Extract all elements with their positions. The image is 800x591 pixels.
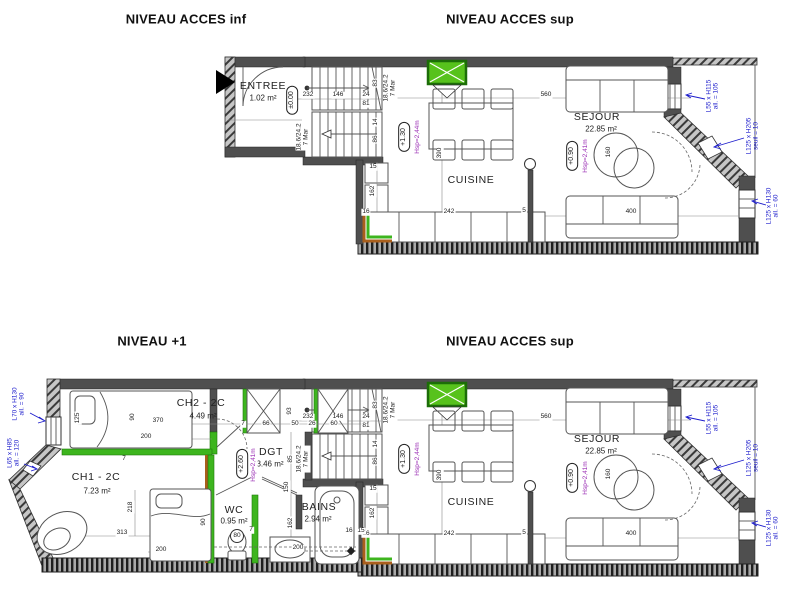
dim-label: 390: [437, 469, 444, 482]
dim-label: 162: [370, 185, 377, 198]
level-marker-dgt: +2.60: [236, 449, 248, 479]
dim-label: 5: [521, 530, 527, 537]
dim-label: 390: [437, 147, 444, 160]
dim-label: 80: [232, 533, 241, 540]
dim-label: 200: [155, 547, 168, 554]
dim-label: 162: [288, 517, 295, 530]
plan-title-upper-right: NIVEAU ACCES sup: [446, 12, 574, 27]
window-tag-w65x85: L65 x H85all. = 120: [7, 438, 22, 468]
dim-label: 15: [368, 486, 377, 493]
plan-title-lower-left: NIVEAU +1: [117, 334, 186, 349]
room-label-wc: WC: [225, 504, 244, 516]
plan-title-lower-right: NIVEAU ACCES sup: [446, 334, 574, 349]
dim-label: 90: [130, 412, 137, 421]
dim-label: 15: [368, 164, 377, 171]
window-tag-w55x115: L55 x H115all. = 105: [706, 80, 721, 113]
level-marker-cuisine: +1.30: [398, 122, 410, 152]
dim-label: 7: [240, 421, 246, 428]
room-label-bains: BAINS: [302, 501, 337, 513]
room-label-dgt: DGT: [259, 446, 283, 458]
room-label-sejour: SEJOUR: [574, 111, 620, 123]
room-label-ch2: CH2 - 2C: [177, 397, 226, 409]
room-area-wc: 0.95 m²: [220, 517, 247, 526]
ceiling-height-dgt: Hsp=2,41m: [251, 448, 258, 481]
dim-label: 90: [201, 517, 208, 526]
window-tag-w125x205: L125 x H205seuil = 10: [746, 440, 761, 477]
window-tag-w125x130: L125 x H130all. = 60: [766, 188, 781, 225]
stair-note: 18.6/24.27 Mar: [383, 74, 398, 101]
dim-label: 400: [625, 209, 638, 216]
stair-note: 18.6/24.27 Mar: [383, 396, 398, 423]
ceiling-height-cuisine: Hsp=2,44m: [415, 120, 422, 153]
room-label-cuisine: CUISINE: [448, 174, 495, 186]
dim-label: 86: [373, 134, 380, 143]
window-tag-w55x115: L55 x H115all. = 105: [706, 402, 721, 435]
plan-title-upper-left: NIVEAU ACCES inf: [126, 12, 246, 27]
dim-label: 16: [361, 209, 370, 216]
room-area-bains: 2.94 m²: [304, 515, 331, 524]
dim-label: 7: [121, 456, 127, 463]
dim-label: 24: [361, 414, 370, 421]
level-marker-cuisine: +1.30: [398, 444, 410, 474]
dim-label: 50: [290, 421, 299, 428]
room-area-sejour: 22.85 m²: [585, 447, 617, 456]
dim-label: 400: [625, 531, 638, 538]
window-tag-w125x205: L125 x H205seuil = 10: [746, 118, 761, 155]
dim-label: 242: [443, 209, 456, 216]
dim-label: 60: [329, 421, 338, 428]
level-marker-sejour: +0.90: [566, 141, 578, 171]
dim-label: 14: [373, 439, 380, 448]
dim-label: 218: [128, 501, 135, 514]
window-tag-w70x130: L70 x H130all. = 90: [12, 387, 27, 420]
room-label-entree: ENTREE: [240, 80, 286, 92]
ceiling-height-sejour: Hsp=2,41m: [583, 139, 590, 172]
ceiling-height-cuisine: Hsp=2,44m: [415, 442, 422, 475]
dim-label: 232: [302, 92, 315, 99]
dim-label: 150: [284, 481, 291, 494]
dim-label: 83: [373, 400, 380, 409]
window-tag-w125x130: L125 x H130all. = 60: [766, 510, 781, 547]
dim-label: 200: [292, 545, 305, 552]
dim-label: 16: [344, 528, 353, 535]
room-label-ch1: CH1 - 2C: [72, 471, 121, 483]
ceiling-height-sejour: Hsp=2,41m: [583, 461, 590, 494]
room-area-ch2: 4.49 m²: [189, 412, 216, 421]
dim-label: 125: [75, 412, 82, 425]
floor-plan-sheet: NIVEAU ACCES inf NIVEAU ACCES sup NIVEAU…: [0, 0, 800, 591]
annotation-layer: NIVEAU ACCES inf NIVEAU ACCES sup NIVEAU…: [0, 0, 800, 591]
dim-label: 83: [373, 78, 380, 87]
dim-label: 66: [261, 421, 270, 428]
dim-label: 81: [361, 101, 370, 108]
dim-label: 93: [287, 406, 294, 415]
dim-label: 160: [606, 468, 613, 481]
dim-label: 15: [356, 528, 365, 535]
dim-label: 7: [248, 527, 254, 534]
dim-label: 146: [332, 92, 345, 99]
dim-label: 14: [373, 117, 380, 126]
dim-label: 24: [361, 92, 370, 99]
dim-label: 86: [373, 456, 380, 465]
dim-label: 5: [521, 208, 527, 215]
room-label-sejour: SEJOUR: [574, 433, 620, 445]
level-marker-entree: ±0.00: [286, 85, 298, 114]
dim-label: 26: [307, 421, 316, 428]
dim-label: 313: [116, 530, 129, 537]
room-area-entree: 1.02 m²: [249, 94, 276, 103]
stair-note: 18.6/24.27 Mar: [296, 123, 311, 150]
level-marker-sejour: +0.90: [566, 463, 578, 493]
dim-label: 242: [443, 531, 456, 538]
room-label-cuisine: CUISINE: [448, 496, 495, 508]
dim-label: 560: [540, 414, 553, 421]
dim-label: 81: [361, 423, 370, 430]
dim-label: 160: [606, 146, 613, 159]
room-area-dgt: 3.46 m²: [256, 460, 283, 469]
room-area-sejour: 22.85 m²: [585, 125, 617, 134]
dim-label: 200: [140, 434, 153, 441]
dim-label: 162: [370, 507, 377, 520]
dim-label: 85: [288, 454, 295, 463]
stair-note: 18.6/24.27 Mar: [296, 445, 311, 472]
room-area-ch1: 7.23 m²: [83, 487, 110, 496]
dim-label: 370: [152, 418, 165, 425]
dim-label: 560: [540, 92, 553, 99]
